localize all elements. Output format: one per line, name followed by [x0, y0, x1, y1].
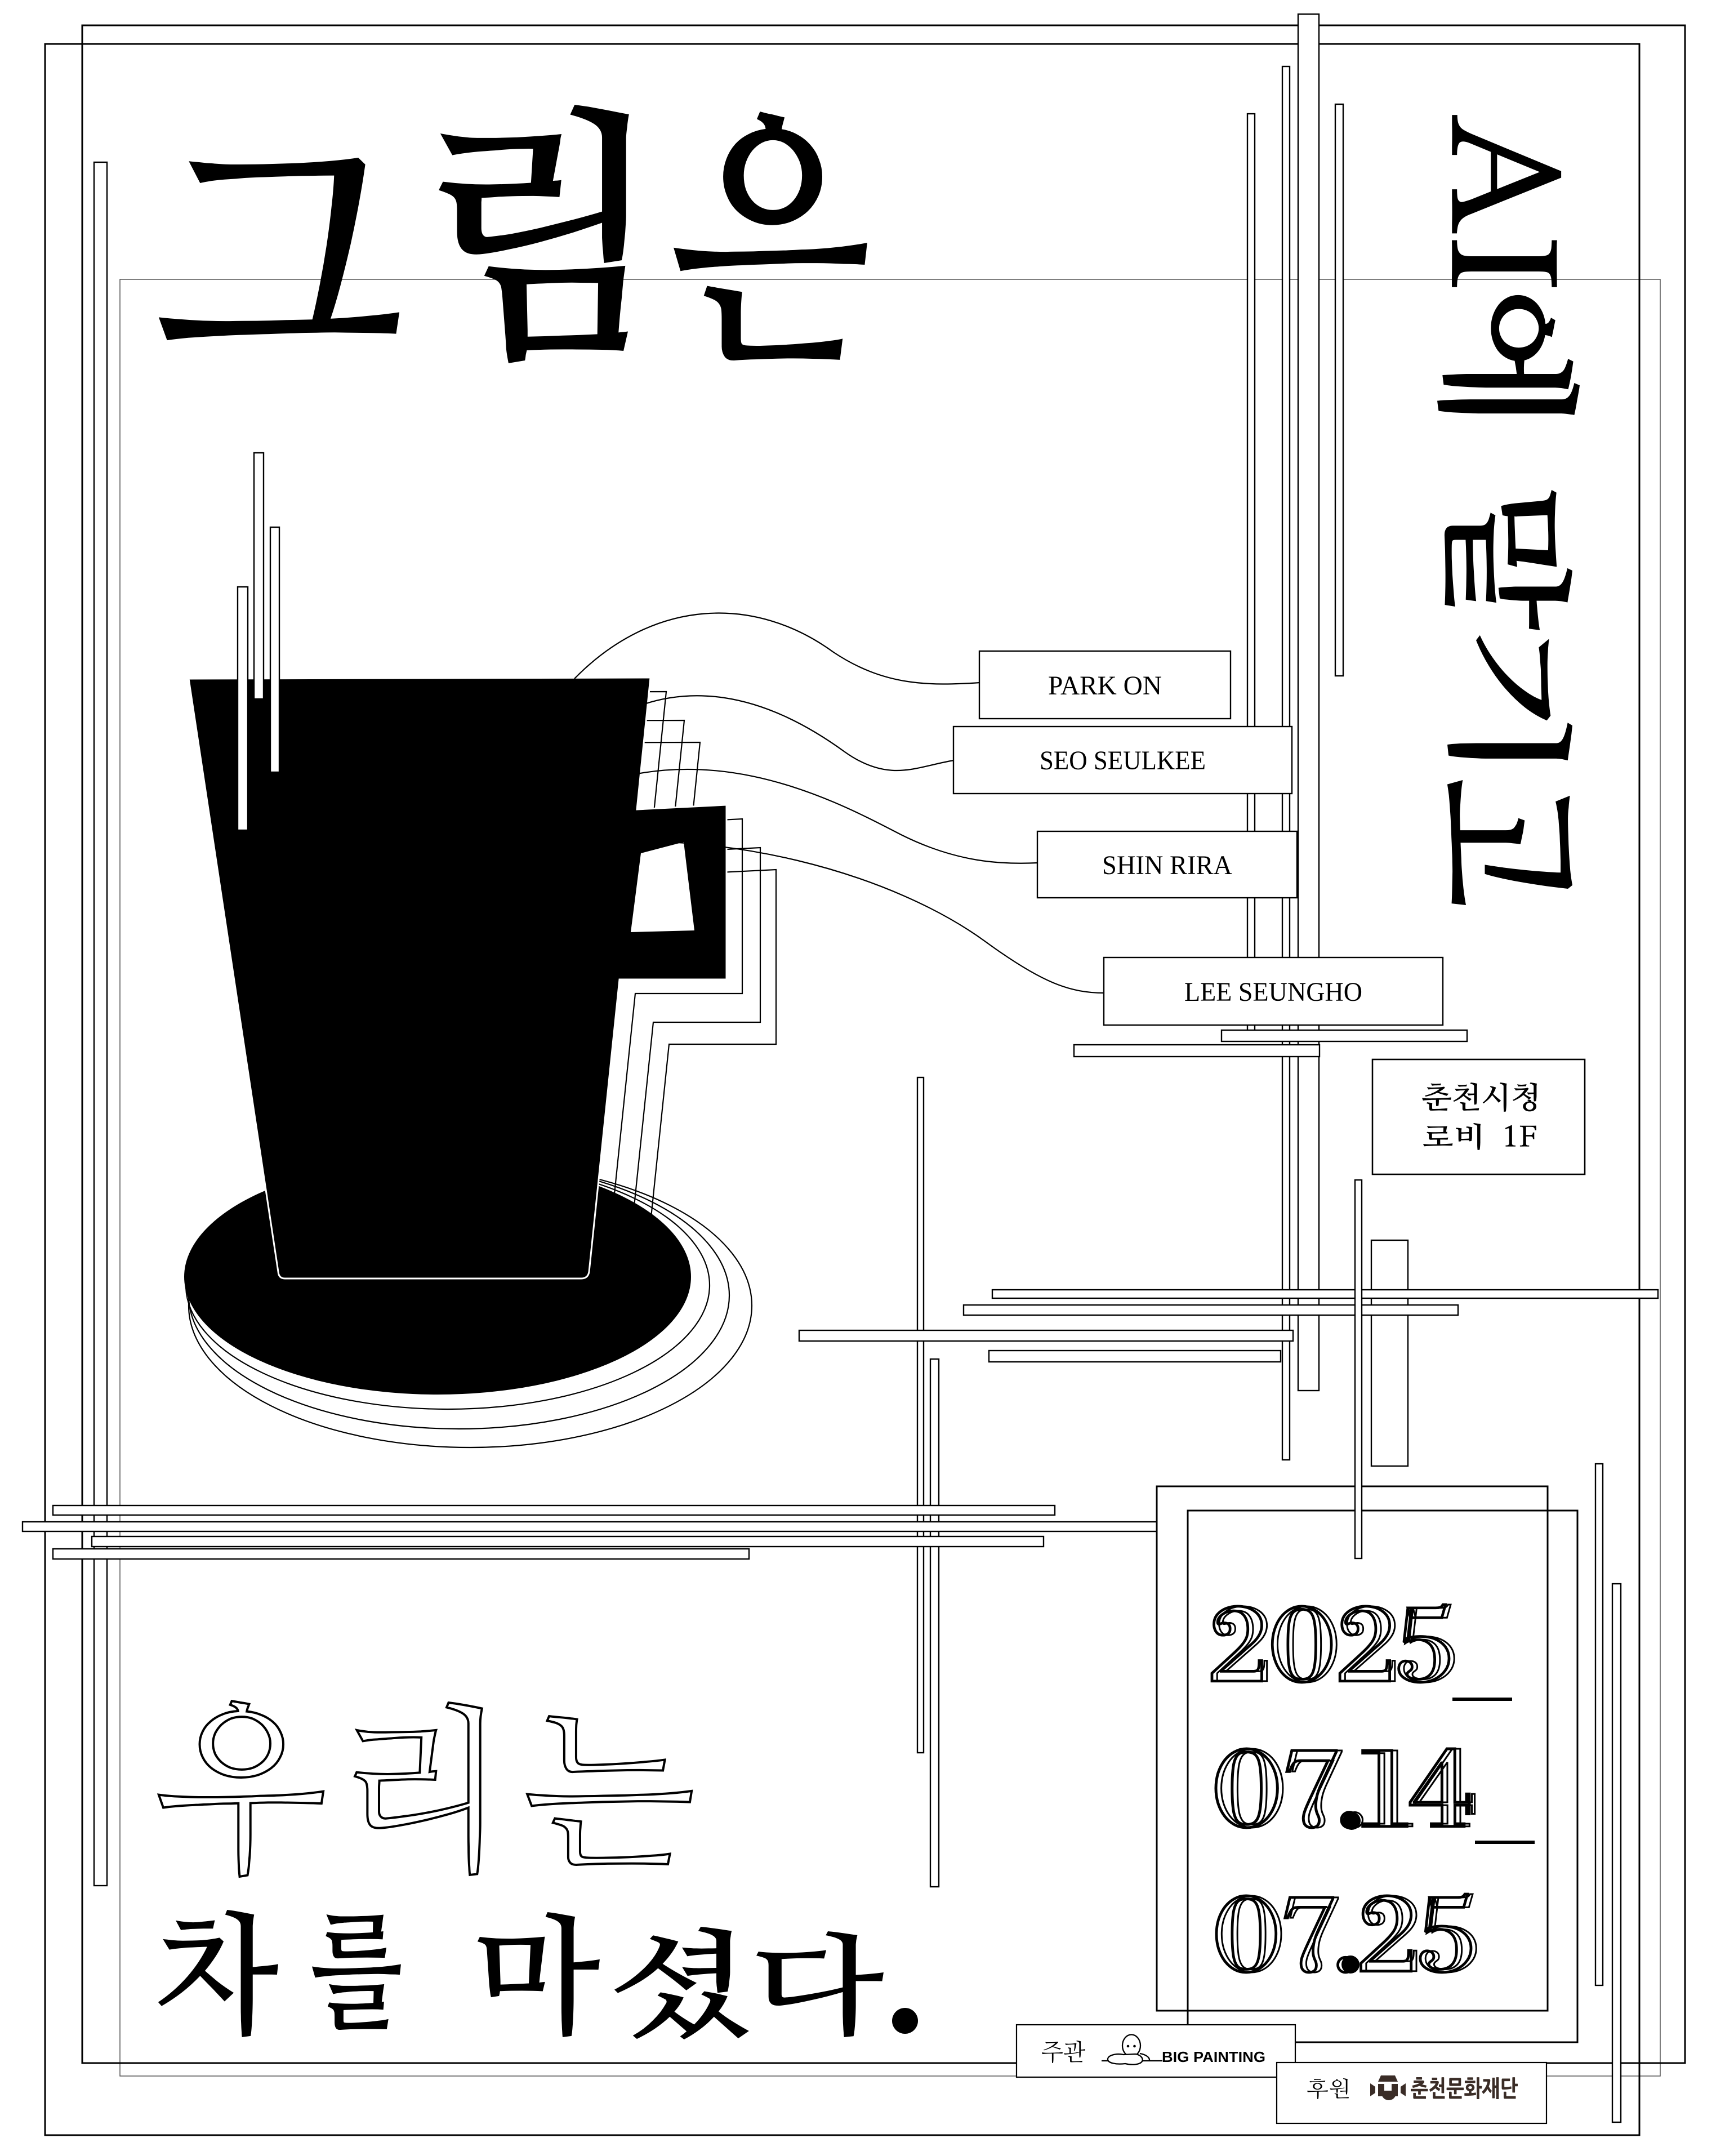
svg-text:SHIN RIRA: SHIN RIRA: [1102, 850, 1232, 880]
svg-text:LEE SEUNGHO: LEE SEUNGHO: [1184, 977, 1362, 1007]
svg-text:SEO SEULKEE: SEO SEULKEE: [1040, 746, 1206, 776]
svg-text:PARK ON: PARK ON: [1048, 671, 1162, 701]
svg-text:BIG PAINTING: BIG PAINTING: [1162, 2048, 1265, 2065]
